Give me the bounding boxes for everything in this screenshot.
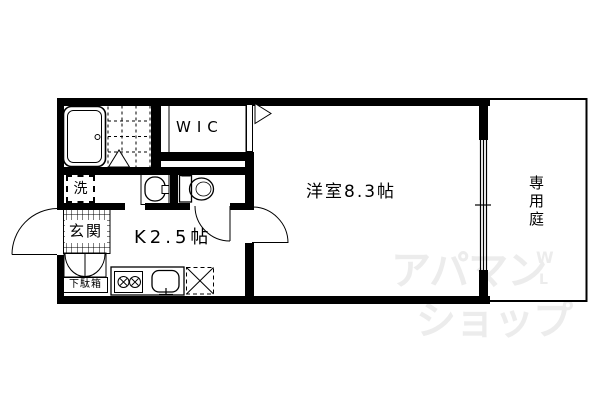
private-garden-label: 専用庭 xyxy=(528,175,543,229)
floor-plan: アパマン W L ショップ xyxy=(0,0,600,400)
shoe-cabinet xyxy=(64,253,106,277)
shoe-cabinet-label: 下駄箱 xyxy=(63,277,108,293)
wic-door-triangle xyxy=(255,104,271,124)
western-room-label: 洋室8.3帖 xyxy=(306,184,396,201)
wic-door-jamb xyxy=(247,105,253,152)
stove-burners xyxy=(115,272,143,293)
bath-door-triangle xyxy=(109,150,130,167)
kitchen-sink xyxy=(152,271,179,295)
outer-walls xyxy=(57,98,490,304)
entrance-door-arc xyxy=(12,209,57,255)
room-door-arc xyxy=(252,207,288,243)
washing-machine-label: 洗 xyxy=(66,175,95,203)
bathtub xyxy=(64,107,106,167)
toilet xyxy=(180,171,214,202)
washbasin xyxy=(141,174,169,205)
kitchen-label: K2.5帖 xyxy=(134,229,212,247)
entrance-label: 玄関 xyxy=(65,220,107,243)
window-sliding-door xyxy=(475,140,491,270)
refrigerator-space xyxy=(187,268,214,295)
wic-label: WIC xyxy=(176,120,224,135)
